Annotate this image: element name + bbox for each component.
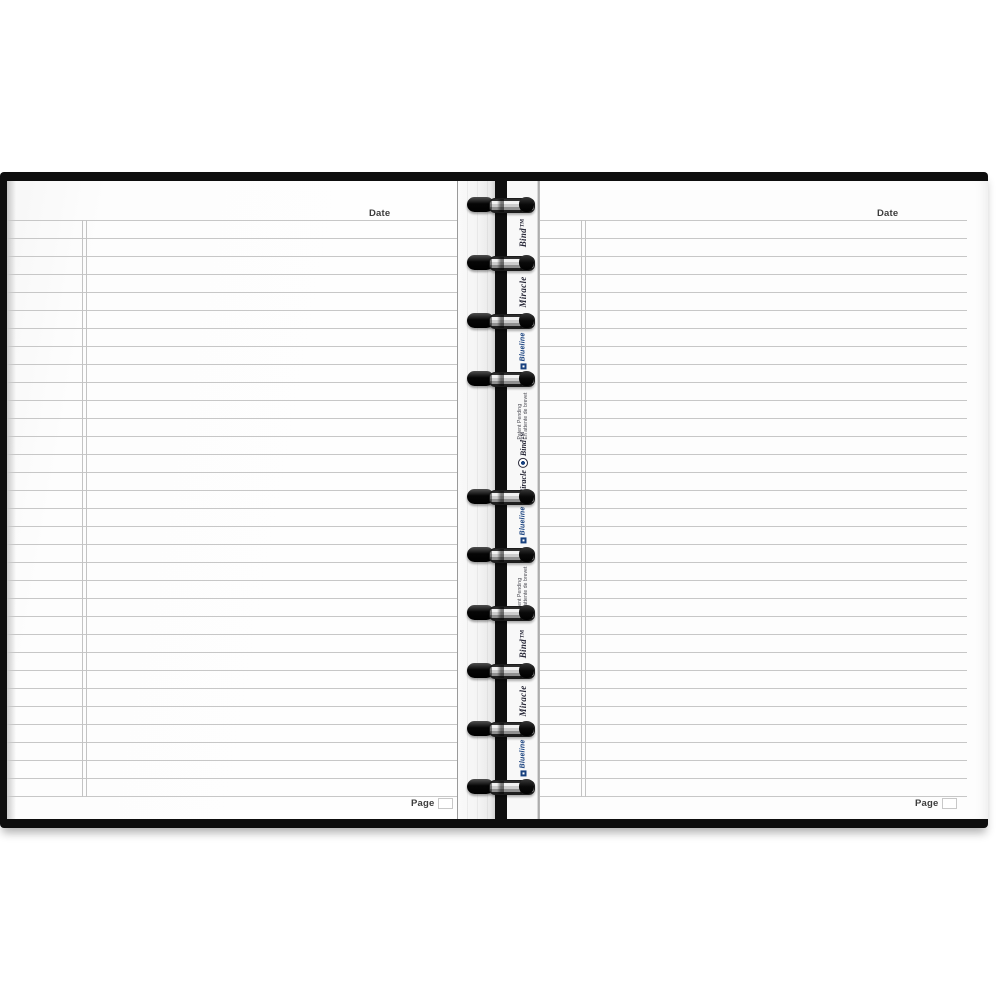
notebook-photo: Date Page Date Page Bind™MiracleBlueline… [0,0,1000,1000]
spine-label-brand: MiracleBind™ [518,432,528,496]
binder-ring [467,720,534,738]
binder-ring [467,254,534,272]
right-page-ruled-lines [540,220,967,797]
miraclebind-logo-icon [518,458,528,468]
page-label: Page [411,798,435,809]
spine-label-script: Bind™ [518,630,528,659]
date-label: Date [369,208,390,219]
left-page-margin-line [86,220,87,797]
spine-label-blueline: Blueline [520,740,527,777]
binder-ring [467,604,534,622]
binder-ring [467,196,534,214]
spine-label-blueline: Blueline [520,333,527,370]
spine-label-script: Miracle [518,276,528,307]
page-label-row: Page [915,798,957,809]
spine-label-blueline: Blueline [520,507,527,544]
right-page-margin-line [585,220,586,797]
binder-ring [467,662,534,680]
binder-ring [467,778,534,796]
left-page-margin-line [82,220,83,797]
left-page-ruled-lines [7,220,457,797]
binder-ring [467,312,534,330]
right-page: Date Page [539,181,988,819]
blueline-logo-icon [520,770,526,776]
spine-label-script: Miracle [518,685,528,716]
page-label-row: Page [411,798,453,809]
blueline-logo-icon [520,537,526,543]
date-label: Date [877,208,898,219]
binder-ring [467,546,534,564]
page-number-box [438,798,453,809]
binder-ring [467,370,534,388]
page-number-box [942,798,957,809]
page-label: Page [915,798,939,809]
right-page-margin-line [581,220,582,797]
spine-label-script: Bind™ [518,219,528,248]
binder-ring [467,488,534,506]
left-page: Date Page [7,181,458,819]
blueline-logo-icon [520,363,526,369]
